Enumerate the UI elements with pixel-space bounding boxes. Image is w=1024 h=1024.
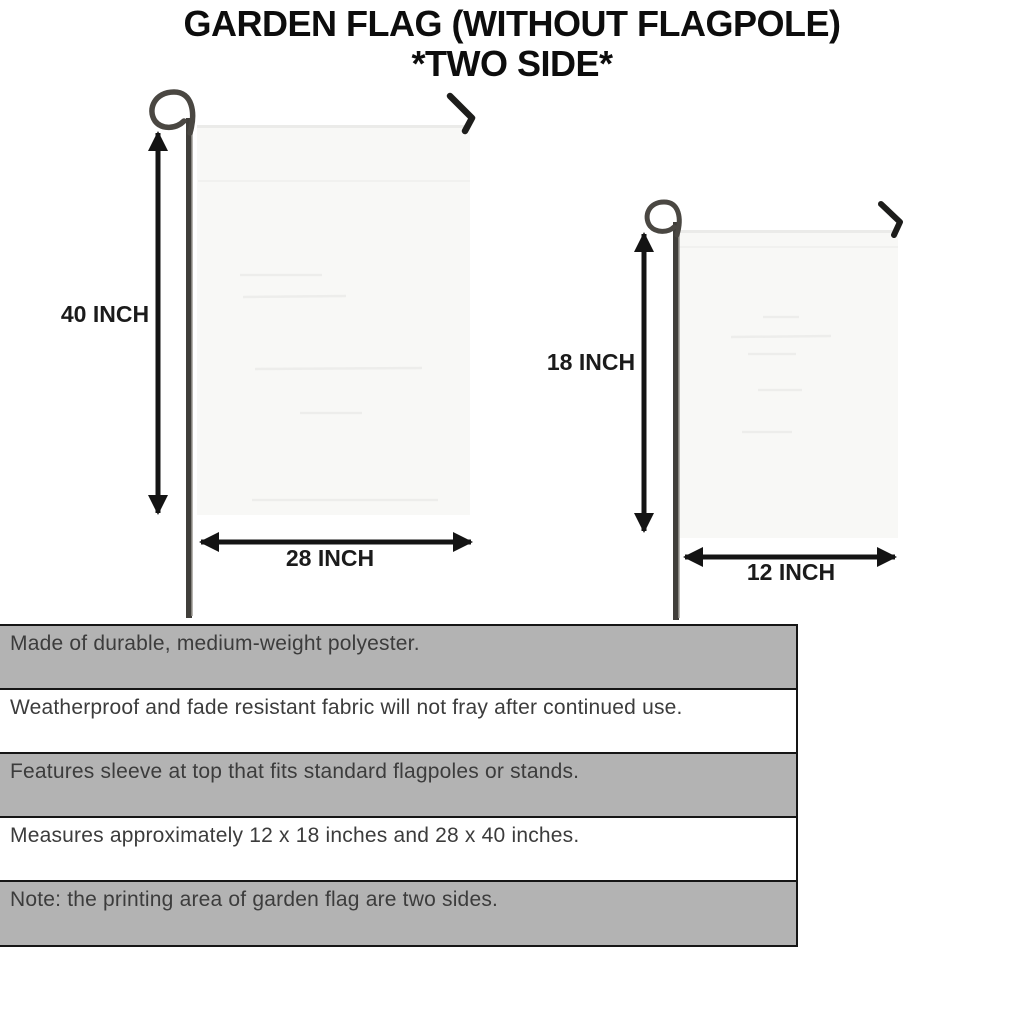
- feature-row: Note: the printing area of garden flag a…: [0, 882, 796, 945]
- small-flag-shape: [678, 230, 898, 538]
- feature-row: Made of durable, medium-weight polyester…: [0, 626, 796, 690]
- feature-row: Measures approximately 12 x 18 inches an…: [0, 818, 796, 882]
- small-flag-height-label: 18 INCH: [521, 349, 661, 376]
- large-flag-group: [152, 92, 472, 618]
- feature-table: Made of durable, medium-weight polyester…: [0, 624, 798, 947]
- garden-flag-infographic: GARDEN FLAG (WITHOUT FLAGPOLE) *TWO SIDE…: [0, 0, 1024, 1024]
- large-flag-width-label: 28 INCH: [255, 545, 405, 572]
- large-flag-shape: [197, 125, 470, 515]
- small-flag-group: [644, 202, 900, 620]
- feature-row: Weatherproof and fade resistant fabric w…: [0, 690, 796, 754]
- small-flag-width-label: 12 INCH: [716, 559, 866, 586]
- large-flag-height-label: 40 INCH: [40, 301, 170, 328]
- feature-row: Features sleeve at top that fits standar…: [0, 754, 796, 818]
